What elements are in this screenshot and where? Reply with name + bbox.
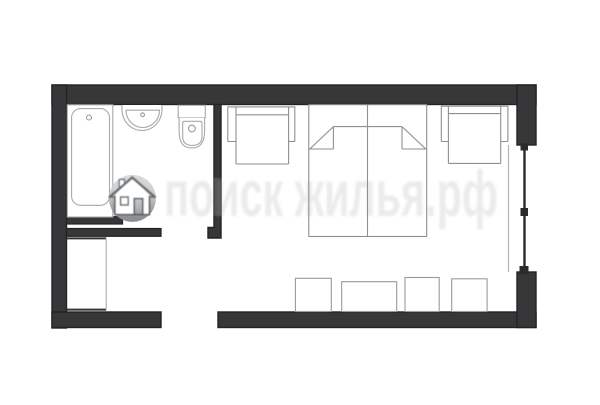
- svg-text:поиск жилья.рф: поиск жилья.рф: [164, 157, 498, 230]
